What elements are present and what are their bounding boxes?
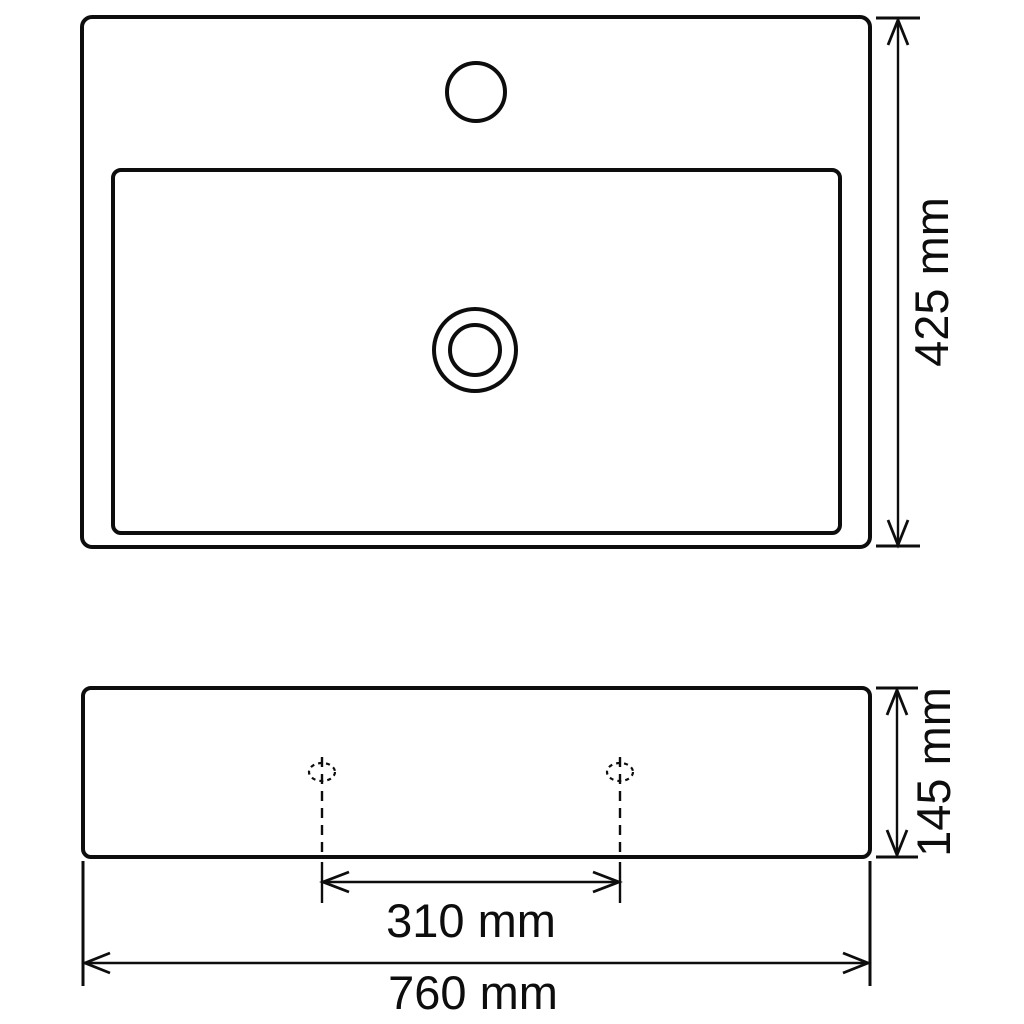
depth-dimension-label: 425 mm bbox=[905, 197, 958, 367]
front-view bbox=[83, 688, 870, 858]
dimension-height: 145 mm bbox=[876, 687, 960, 857]
top-view-outline bbox=[82, 17, 870, 547]
top-view bbox=[82, 17, 870, 547]
spacing-dimension-label: 310 mm bbox=[386, 894, 556, 947]
drain-hole-inner bbox=[450, 325, 500, 375]
front-view-outline bbox=[83, 688, 870, 857]
drawing-canvas: 425 mm 145 mm 310 mm 760 mm bbox=[0, 0, 1024, 1024]
faucet-hole bbox=[447, 63, 505, 121]
height-dimension-label: 145 mm bbox=[907, 687, 960, 857]
technical-drawing: 425 mm 145 mm 310 mm 760 mm bbox=[0, 0, 1024, 1024]
width-dimension-label: 760 mm bbox=[388, 966, 558, 1019]
basin-rim bbox=[113, 170, 840, 533]
drain-hole-outer bbox=[434, 309, 516, 391]
dimension-hole-spacing: 310 mm bbox=[322, 862, 620, 947]
dimension-depth: 425 mm bbox=[876, 18, 958, 546]
